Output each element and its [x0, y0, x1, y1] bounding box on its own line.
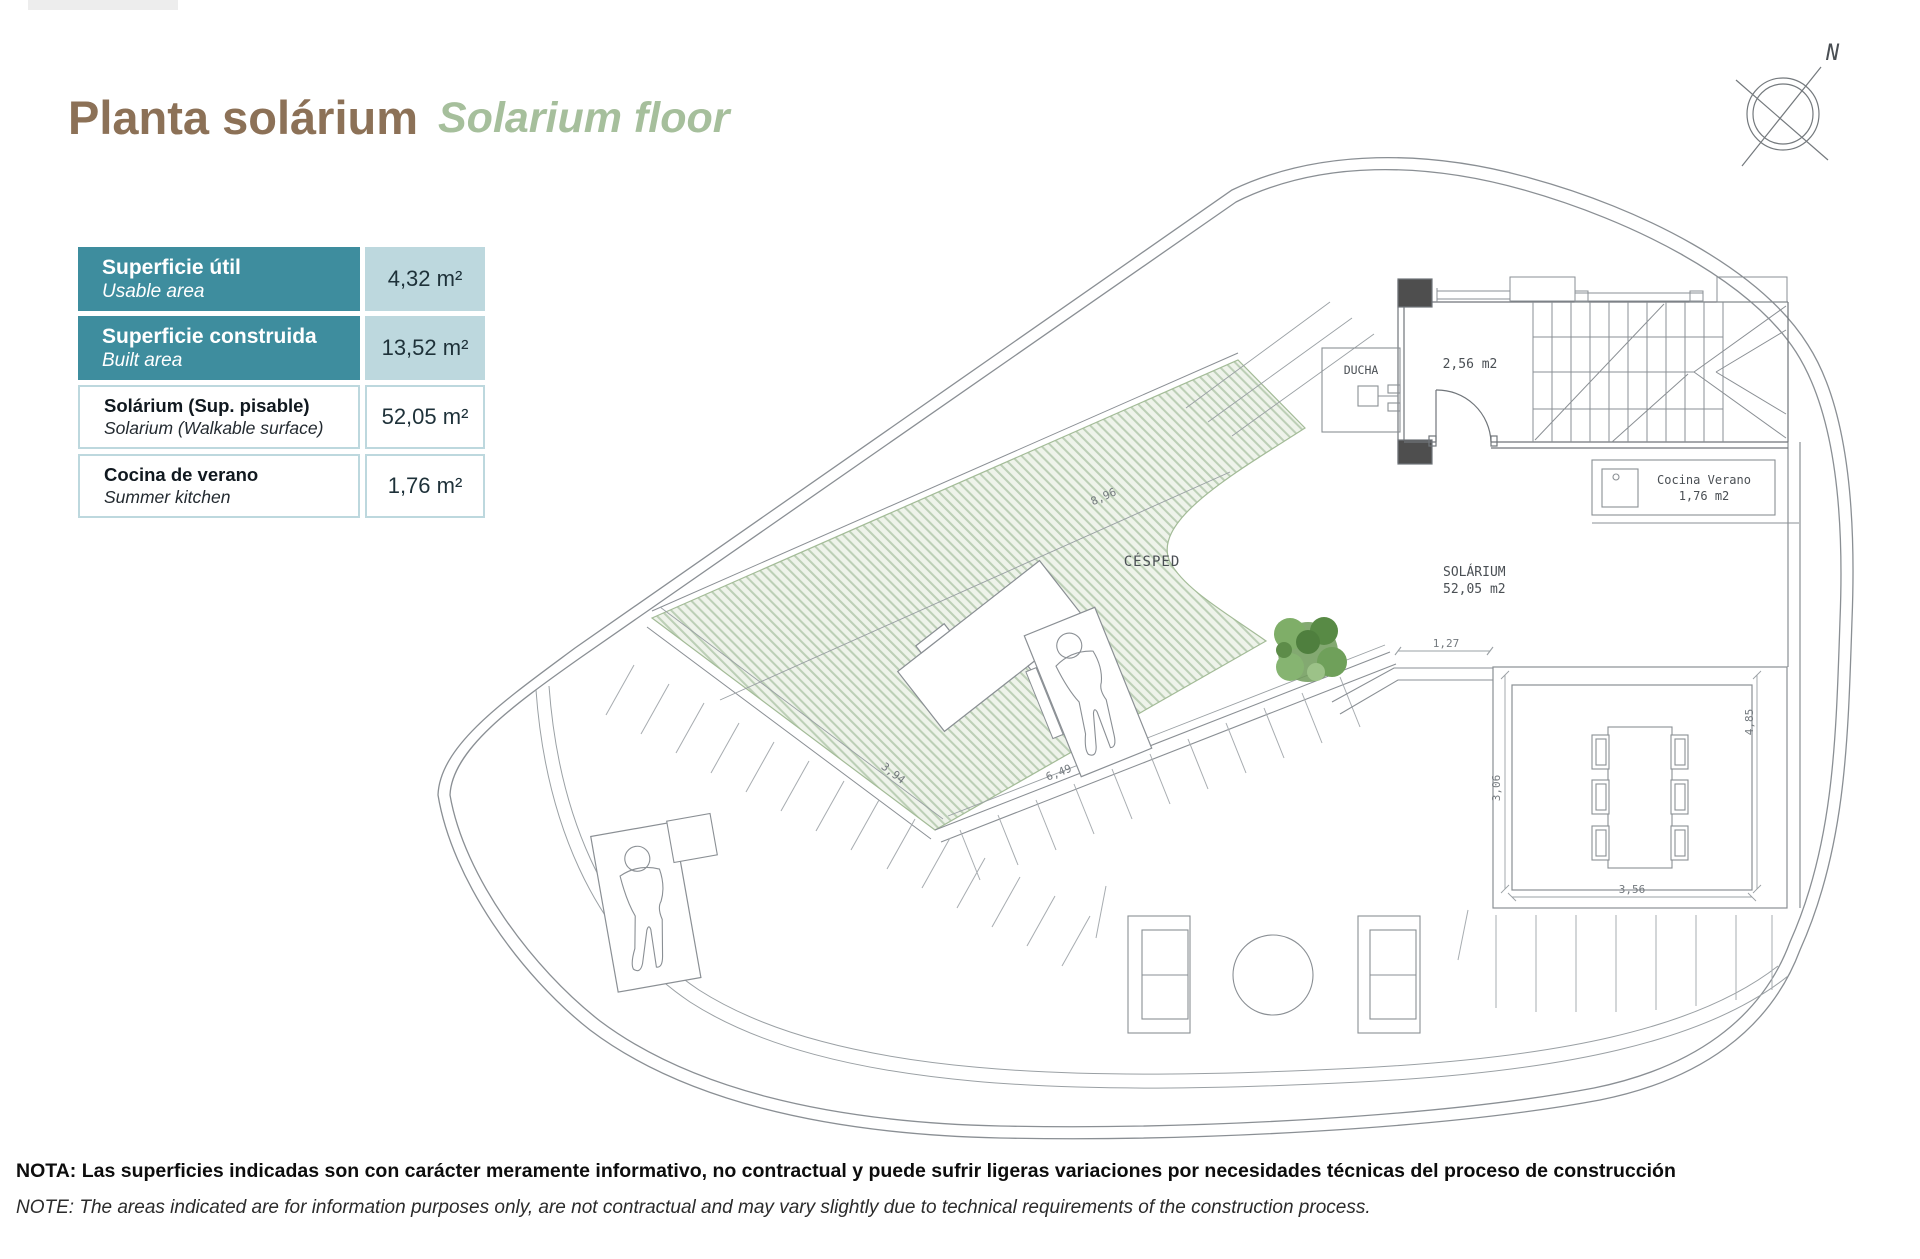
cocina-label: Cocina Verano [1657, 473, 1751, 487]
footer-note-en: NOTE: The areas indicated are for inform… [16, 1197, 1371, 1219]
floor-plan: CÉSPED [0, 0, 1920, 1259]
dim-terrace-right: 4,85 [1743, 709, 1756, 736]
step-walls [1332, 647, 1493, 714]
dining-set [1592, 727, 1688, 868]
cocina-area-label: 1,76 m2 [1679, 489, 1730, 503]
dim-terrace-left: 3,06 [1490, 775, 1503, 802]
stair-room-area-label: 2,56 m2 [1443, 357, 1498, 372]
tree [1274, 617, 1347, 682]
compass [1736, 67, 1828, 166]
footer-note-es: NOTA: Las superficies indicadas son con … [16, 1160, 1676, 1183]
compass-needle-nw [1736, 80, 1828, 160]
cesped-label: CÉSPED [1124, 553, 1181, 570]
lower-side-table [667, 813, 718, 862]
north-label: N [1825, 41, 1840, 66]
compass-needle-ne [1742, 67, 1821, 166]
solarium-label: SOLÁRIUM [1443, 564, 1506, 580]
round-table [1233, 935, 1313, 1015]
seating-area [1128, 916, 1420, 1033]
ducha-room [1322, 348, 1400, 432]
page: Planta solárium Solarium floor Superfici… [0, 0, 1920, 1259]
ducha-label: DUCHA [1344, 363, 1379, 377]
green-area: CÉSPED [647, 353, 1305, 839]
dim-step: 1,27 [1433, 637, 1460, 650]
solarium-area-label: 52,05 m2 [1443, 582, 1506, 597]
dim-terrace-bottom: 3,56 [1619, 883, 1646, 896]
